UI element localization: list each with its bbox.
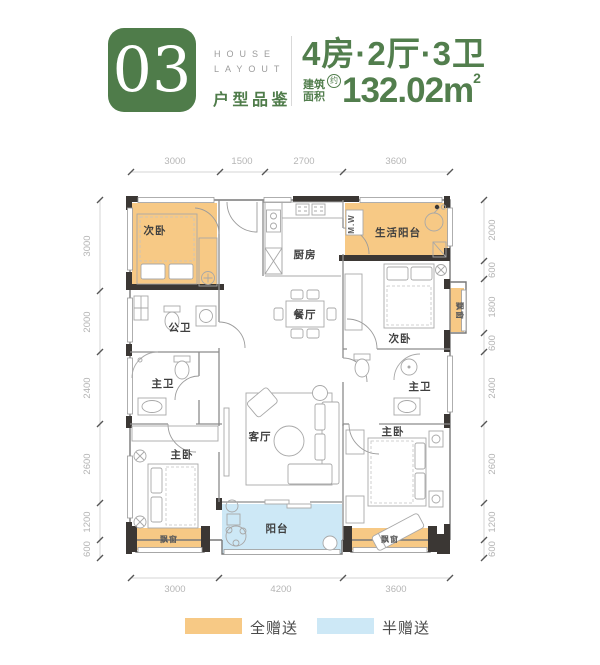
legend-half-gift-swatch bbox=[317, 618, 374, 634]
dim-right-5: 2600 bbox=[487, 453, 498, 474]
dim-right-0: 2000 bbox=[487, 219, 498, 240]
house-layout-tagline: HOUSE LAYOUT bbox=[214, 47, 285, 77]
area-exponent: 2 bbox=[473, 70, 481, 86]
label-balcony: 阳台 bbox=[266, 522, 289, 535]
layout-number-badge: 03 bbox=[108, 28, 196, 112]
dim-left-0: 3000 bbox=[82, 235, 93, 256]
legend-full-gift-swatch bbox=[185, 618, 242, 634]
area-label: 建筑 面积 bbox=[303, 79, 325, 103]
dim-right-7: 600 bbox=[487, 541, 498, 557]
furniture-bedroom-right bbox=[345, 264, 447, 330]
built-area: 建筑 面积 约 132.02m 2 bbox=[303, 72, 481, 110]
label-bay-right: 飘窗 bbox=[455, 302, 465, 320]
label-life-balcony: 生活阳台 bbox=[375, 226, 421, 239]
header-divider bbox=[291, 36, 292, 106]
furniture-kitchen bbox=[265, 202, 343, 274]
dim-bottom-0: 3000 bbox=[164, 584, 185, 595]
dim-top-2: 2700 bbox=[293, 156, 314, 167]
dim-right-4: 2400 bbox=[487, 377, 498, 398]
label-master-bath-right: 主卫 bbox=[409, 380, 432, 393]
approx-circle: 约 bbox=[327, 74, 341, 88]
label-bedroom-tl: 次卧 bbox=[144, 224, 167, 237]
tagline-line2: LAYOUT bbox=[214, 62, 285, 77]
floorplan-drawing: 次卧 厨房 生活阳台 M.W 次卧 飘窗 公卫 餐厅 主卫 主卫 主卧 主卧 客… bbox=[0, 150, 600, 610]
label-bay-bl: 飘窗 bbox=[160, 534, 178, 544]
dim-top-3: 3600 bbox=[385, 156, 406, 167]
dim-right-3: 600 bbox=[487, 335, 498, 351]
dim-left-1: 2000 bbox=[82, 311, 93, 332]
dim-left-4: 1200 bbox=[82, 511, 93, 532]
dim-right-1: 600 bbox=[487, 262, 498, 278]
layout-subtitle: 户型品鉴 bbox=[213, 86, 291, 110]
label-kitchen: 厨房 bbox=[294, 248, 317, 261]
label-dining: 餐厅 bbox=[293, 308, 317, 321]
label-master-bedroom-right: 主卧 bbox=[382, 425, 405, 438]
legend-half-gift-label: 半赠送 bbox=[382, 617, 430, 638]
furniture-master-bedroom-left bbox=[132, 426, 218, 528]
floorplan-page: 03 HOUSE LAYOUT 户型品鉴 4房·2厅·3卫 建筑 面积 约 13… bbox=[0, 0, 600, 665]
label-living: 客厅 bbox=[248, 430, 272, 443]
label-master-bath-left: 主卫 bbox=[152, 377, 175, 390]
dim-top-1: 1500 bbox=[231, 156, 252, 167]
dim-right-6: 1200 bbox=[487, 511, 498, 532]
label-washer: M.W bbox=[347, 214, 356, 233]
dim-left-2: 2400 bbox=[82, 377, 93, 398]
layout-title: 4房·2厅·3卫 bbox=[302, 27, 486, 75]
dim-bottom-2: 3600 bbox=[385, 584, 406, 595]
label-master-bedroom-left: 主卧 bbox=[171, 448, 194, 461]
tagline-line1: HOUSE bbox=[214, 47, 285, 62]
furniture-master-bedroom-right bbox=[346, 430, 443, 523]
label-bay-br: 飘窗 bbox=[381, 534, 399, 544]
dim-bottom-1: 4200 bbox=[270, 584, 291, 595]
label-bedroom-right: 次卧 bbox=[389, 332, 412, 345]
area-value: 132.02m bbox=[342, 72, 473, 110]
dim-right-2: 1800 bbox=[487, 296, 498, 317]
furniture-living bbox=[224, 386, 339, 486]
legend-full-gift-label: 全赠送 bbox=[250, 617, 298, 638]
label-public-bath: 公卫 bbox=[169, 322, 192, 334]
dim-left-5: 600 bbox=[82, 541, 93, 557]
dim-top-0: 3000 bbox=[164, 156, 185, 167]
dim-left-3: 2600 bbox=[82, 453, 93, 474]
